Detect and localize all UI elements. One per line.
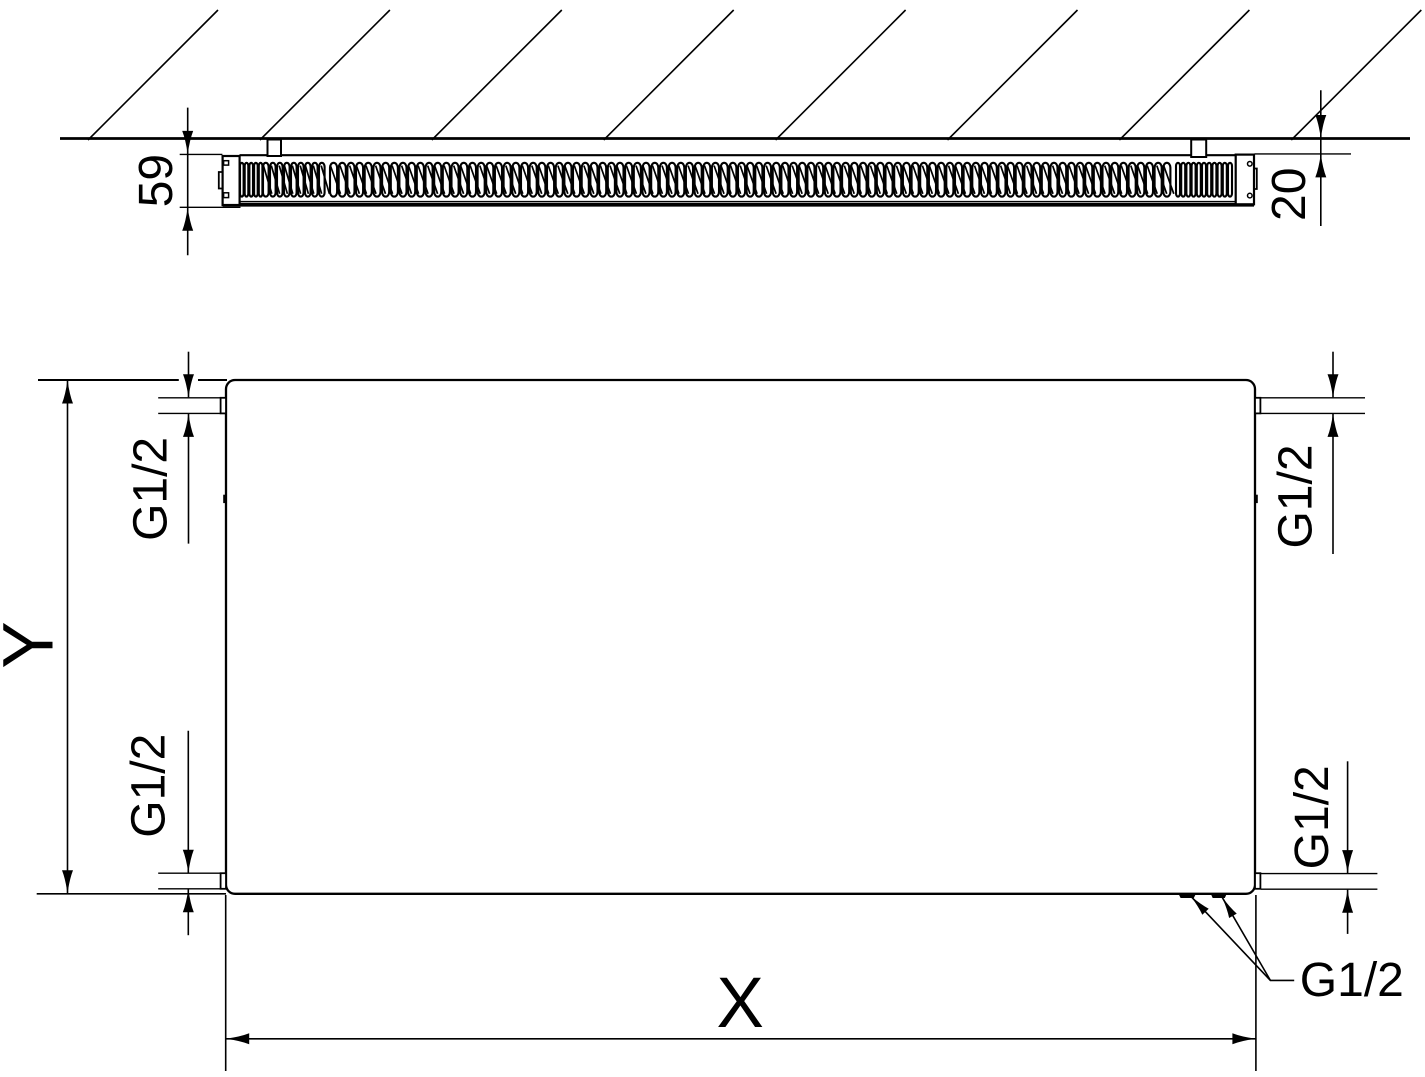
svg-text:Y: Y — [0, 621, 69, 668]
svg-text:G1/2: G1/2 — [1270, 444, 1323, 548]
svg-text:G1/2: G1/2 — [122, 734, 175, 838]
svg-text:59: 59 — [130, 154, 183, 207]
svg-text:X: X — [717, 964, 764, 1043]
svg-text:G1/2: G1/2 — [125, 437, 178, 541]
svg-text:20: 20 — [1263, 168, 1316, 221]
svg-text:G1/2: G1/2 — [1300, 954, 1404, 1007]
svg-text:G1/2: G1/2 — [1286, 765, 1339, 869]
